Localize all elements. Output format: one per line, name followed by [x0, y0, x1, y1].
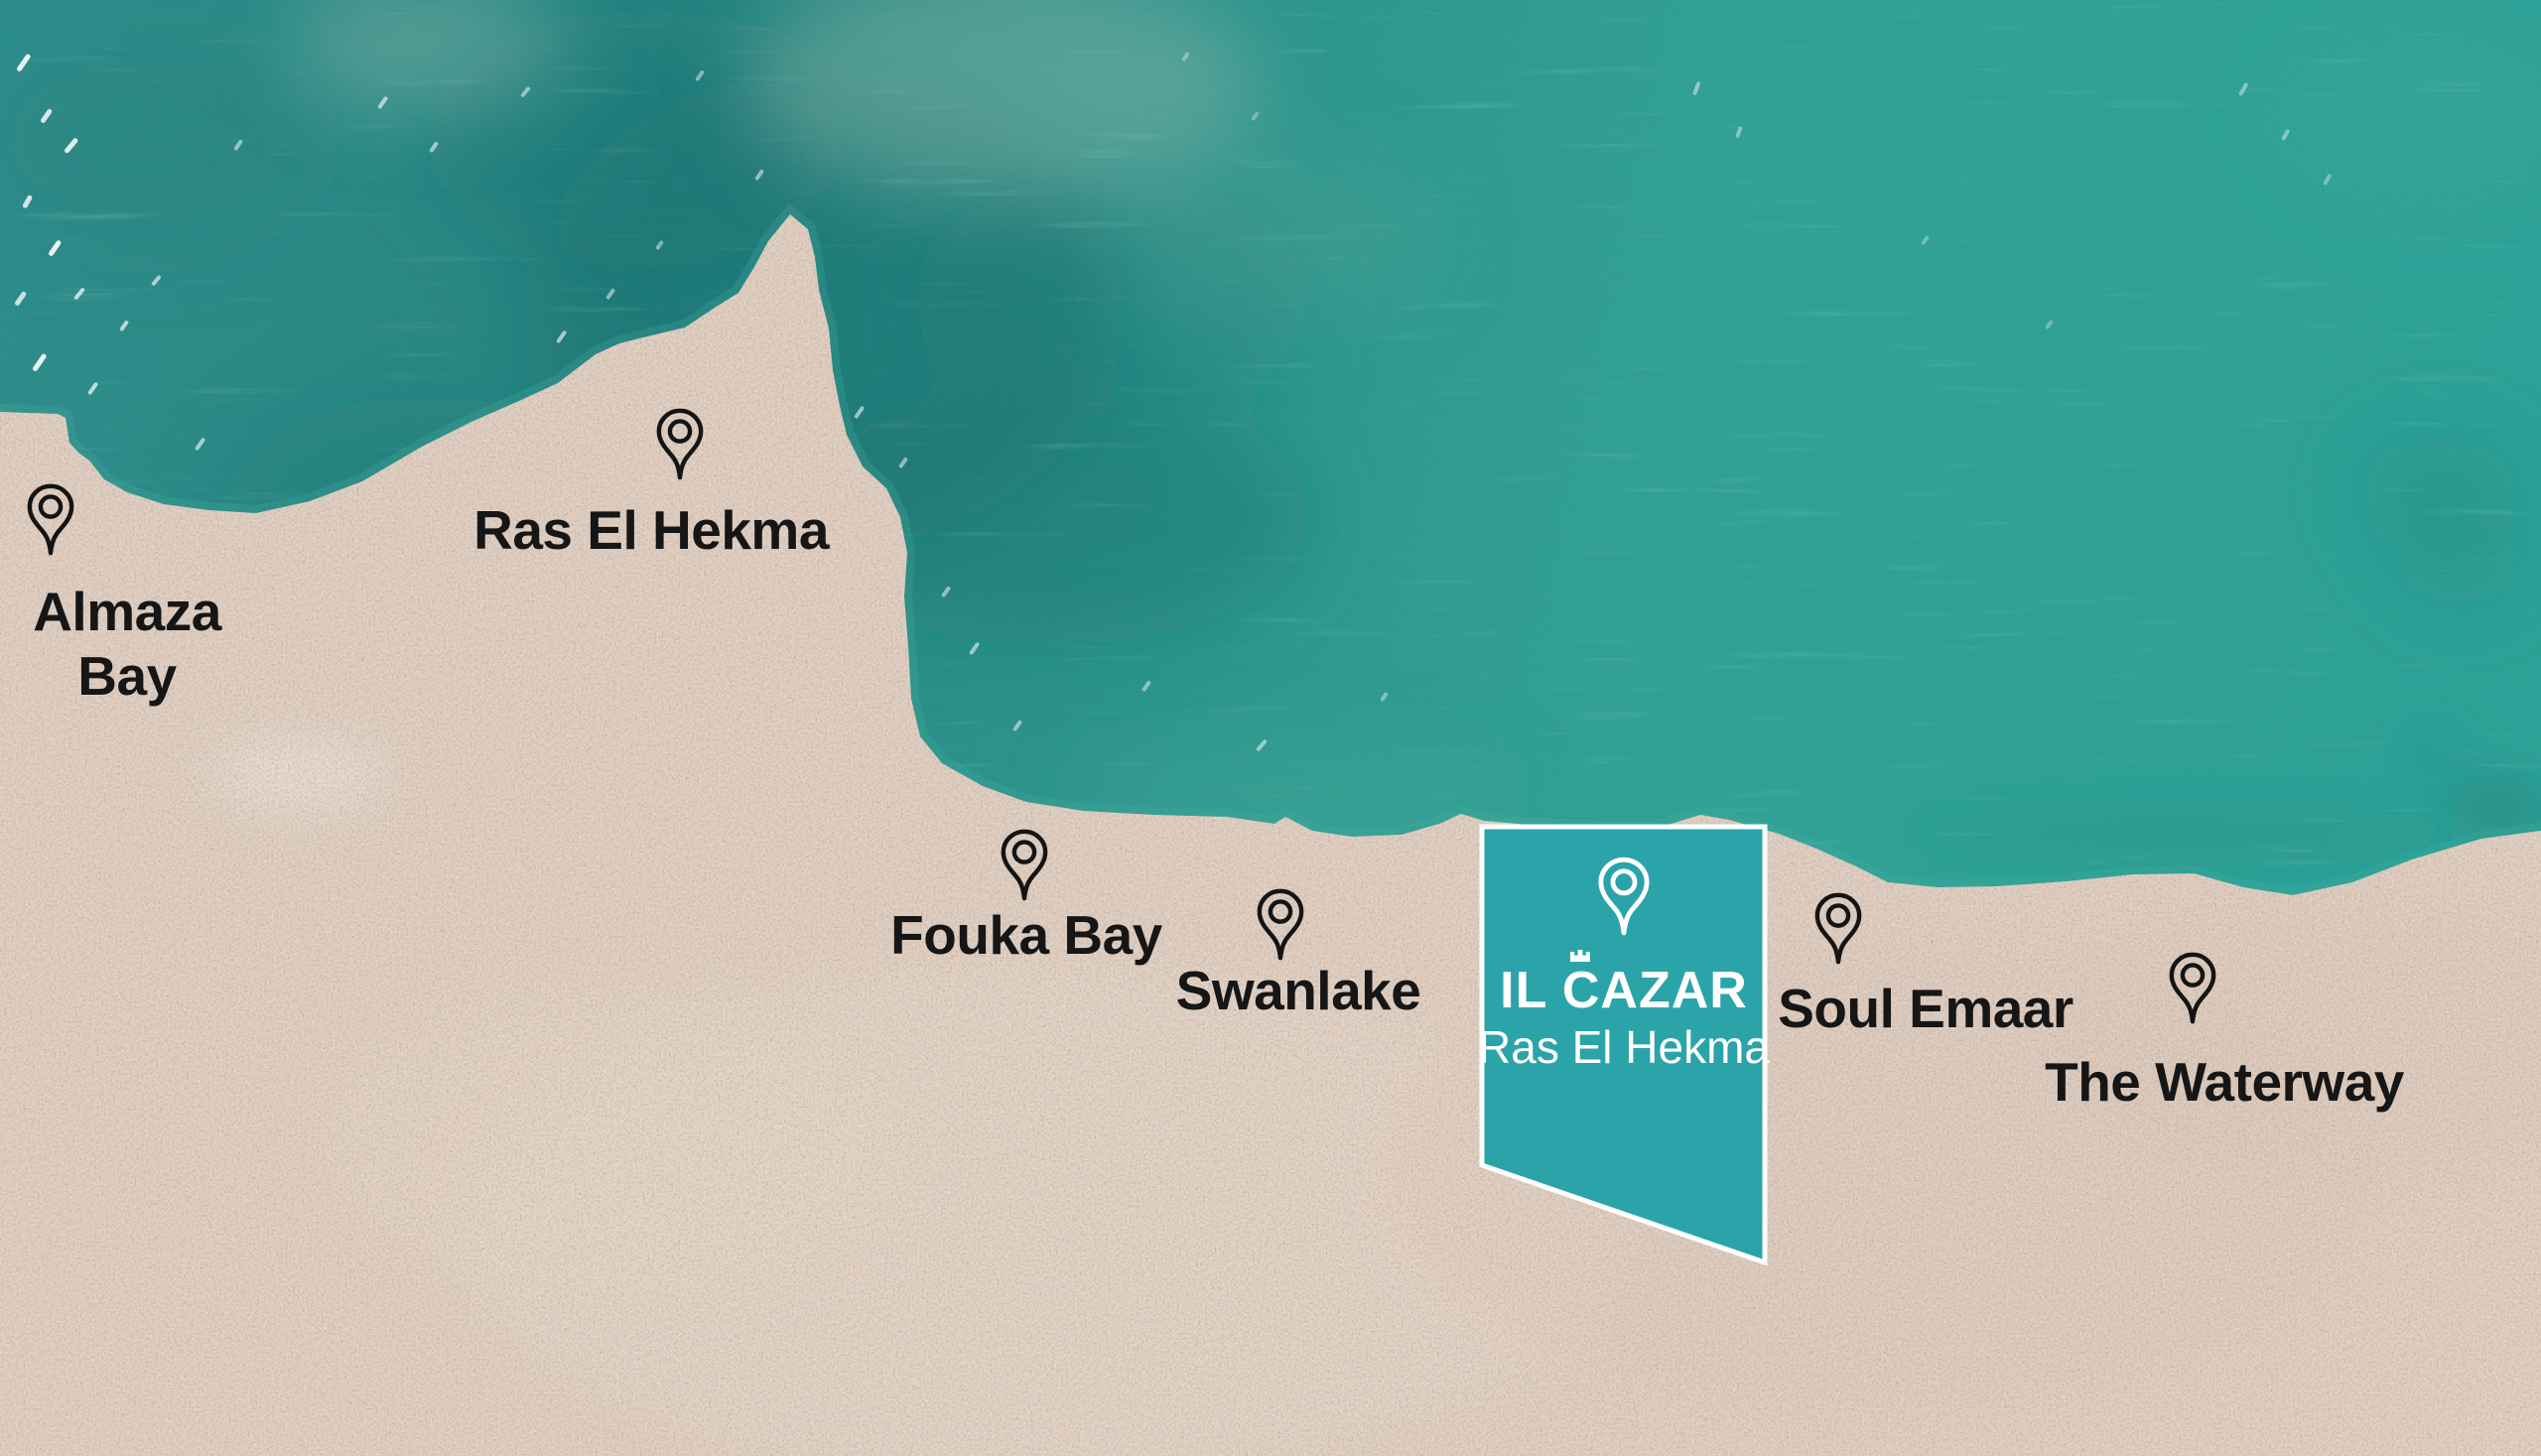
location-label-swanlake: Swanlake [1176, 959, 1421, 1023]
banner-subtitle: Ras El Hekma [1478, 1020, 1770, 1074]
location-label-almaza-bay: Almaza Bay [3, 580, 251, 709]
north-coast-location-map: Almaza Bay Ras El Hekma Fouka Bay Swanla… [0, 0, 2541, 1456]
map-pin-icon [1596, 856, 1652, 937]
map-pin-icon [1813, 891, 1863, 966]
map-pin-icon [655, 407, 705, 481]
location-label-fouka-bay: Fouka Bay [890, 903, 1162, 968]
map-pin-icon [2168, 951, 2217, 1025]
banner-brand: IL CAZAR [1500, 961, 1748, 1020]
map-pin-icon [1000, 828, 1049, 902]
location-label-soul-emaar: Soul Emaar [1778, 977, 2073, 1041]
map-pin-icon [26, 482, 75, 557]
location-label-ras-el-hekma: Ras El Hekma [473, 498, 829, 563]
map-background [0, 0, 2541, 1456]
location-label-the-waterway: The Waterway [2045, 1050, 2404, 1115]
crown-icon [1568, 946, 1592, 962]
map-pin-icon [1256, 887, 1305, 962]
